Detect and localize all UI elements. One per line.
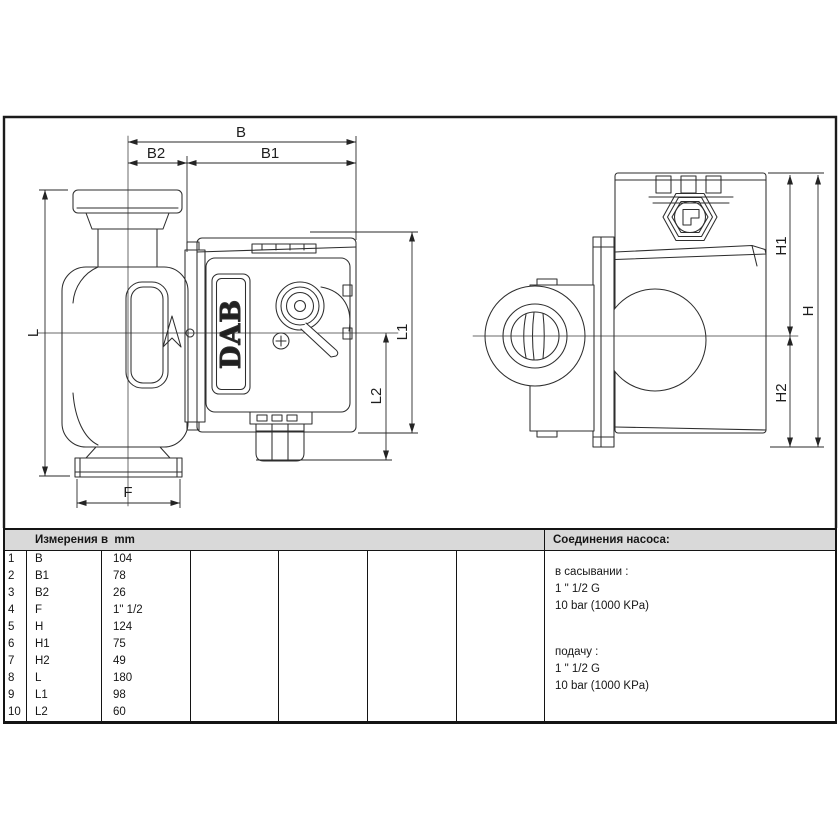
front-view: DAB <box>38 136 398 506</box>
empty-cell <box>279 602 368 619</box>
empty-cell <box>368 585 457 602</box>
row-num: 2 <box>5 568 27 585</box>
empty-cell <box>279 670 368 687</box>
drawing-frame <box>4 117 836 528</box>
pump-dimension-sheet: DAB <box>0 0 840 840</box>
row-num: 4 <box>5 602 27 619</box>
empty-cell <box>457 551 545 568</box>
empty-cell <box>191 602 279 619</box>
row-label: F <box>27 602 102 619</box>
row-value: 104 <box>102 551 191 568</box>
empty-cell <box>279 568 368 585</box>
dim-label-b: B <box>236 124 246 141</box>
row-num: 10 <box>5 704 27 721</box>
suction-size: 1 " 1/2 G <box>555 581 829 598</box>
empty-cell <box>279 551 368 568</box>
empty-cell <box>457 568 545 585</box>
row-value: 75 <box>102 636 191 653</box>
empty-cell <box>457 670 545 687</box>
dim-label-h: H <box>800 306 817 317</box>
empty-cell <box>368 568 457 585</box>
empty-cell <box>457 602 545 619</box>
table-body: в сасывании : 1 " 1/2 G 10 bar (1000 KPa… <box>5 551 835 721</box>
empty-cell <box>368 670 457 687</box>
empty-cell <box>368 704 457 721</box>
connections-header: Соединения насоса: <box>545 530 835 550</box>
empty-cell <box>191 704 279 721</box>
empty-cell <box>191 653 279 670</box>
empty-cell <box>368 619 457 636</box>
side-view <box>473 173 798 447</box>
dim-label-h1: H1 <box>773 236 790 255</box>
dim-label-b1: B1 <box>261 145 279 162</box>
row-label: H <box>27 619 102 636</box>
row-value: 49 <box>102 653 191 670</box>
row-label: L <box>27 670 102 687</box>
knob-lever <box>301 323 338 357</box>
measurements-header: Измерения в mm <box>5 530 545 550</box>
empty-cell <box>191 568 279 585</box>
empty-cell <box>191 619 279 636</box>
row-label: H1 <box>27 636 102 653</box>
row-label: B2 <box>27 585 102 602</box>
dim-label-h2: H2 <box>773 383 790 402</box>
empty-cell <box>191 636 279 653</box>
empty-cell <box>457 585 545 602</box>
row-label: L2 <box>27 704 102 721</box>
dim-label-l2: L2 <box>368 388 385 405</box>
empty-cell <box>457 704 545 721</box>
row-num: 6 <box>5 636 27 653</box>
flow-arrow-icon <box>163 316 181 347</box>
dim-label-b2: B2 <box>147 145 165 162</box>
empty-cell <box>368 653 457 670</box>
row-num: 8 <box>5 670 27 687</box>
row-label: B <box>27 551 102 568</box>
empty-cell <box>457 619 545 636</box>
row-value: 180 <box>102 670 191 687</box>
empty-cell <box>279 619 368 636</box>
row-value: 124 <box>102 619 191 636</box>
delivery-label: подачу : <box>555 644 829 661</box>
row-label: B1 <box>27 568 102 585</box>
connections-panel: в сасывании : 1 " 1/2 G 10 bar (1000 KPa… <box>545 551 835 721</box>
row-label: H2 <box>27 653 102 670</box>
row-value: 26 <box>102 585 191 602</box>
row-value: 60 <box>102 704 191 721</box>
technical-drawing: DAB <box>0 0 840 528</box>
dim-label-l1: L1 <box>394 324 411 341</box>
delivery-pressure: 10 bar (1000 KPa) <box>555 678 829 695</box>
empty-cell <box>368 687 457 704</box>
empty-cell <box>279 585 368 602</box>
table-header-row: Измерения в mm Соединения насоса: <box>5 530 835 551</box>
suction-label: в сасывании : <box>555 564 829 581</box>
empty-cell <box>191 687 279 704</box>
row-value: 98 <box>102 687 191 704</box>
dim-label-f: F <box>123 484 132 501</box>
empty-cell <box>368 602 457 619</box>
empty-cell <box>368 551 457 568</box>
dim-label-l: L <box>25 329 42 337</box>
dab-logo: DAB <box>216 299 247 369</box>
empty-cell <box>457 636 545 653</box>
empty-cell <box>191 551 279 568</box>
dimensions-table: Измерения в mm Соединения насоса: в сасы… <box>3 528 837 724</box>
empty-cell <box>279 704 368 721</box>
row-num: 9 <box>5 687 27 704</box>
row-label: L1 <box>27 687 102 704</box>
row-num: 3 <box>5 585 27 602</box>
empty-cell <box>457 687 545 704</box>
empty-cell <box>191 585 279 602</box>
empty-cell <box>279 636 368 653</box>
row-value: 78 <box>102 568 191 585</box>
empty-cell <box>457 653 545 670</box>
row-num: 1 <box>5 551 27 568</box>
hex-plug-icon <box>663 194 717 241</box>
delivery-size: 1 " 1/2 G <box>555 661 829 678</box>
row-value: 1" 1/2 <box>102 602 191 619</box>
row-num: 7 <box>5 653 27 670</box>
suction-pressure: 10 bar (1000 KPa) <box>555 598 829 615</box>
empty-cell <box>279 687 368 704</box>
row-num: 5 <box>5 619 27 636</box>
empty-cell <box>279 653 368 670</box>
empty-cell <box>191 670 279 687</box>
empty-cell <box>368 636 457 653</box>
